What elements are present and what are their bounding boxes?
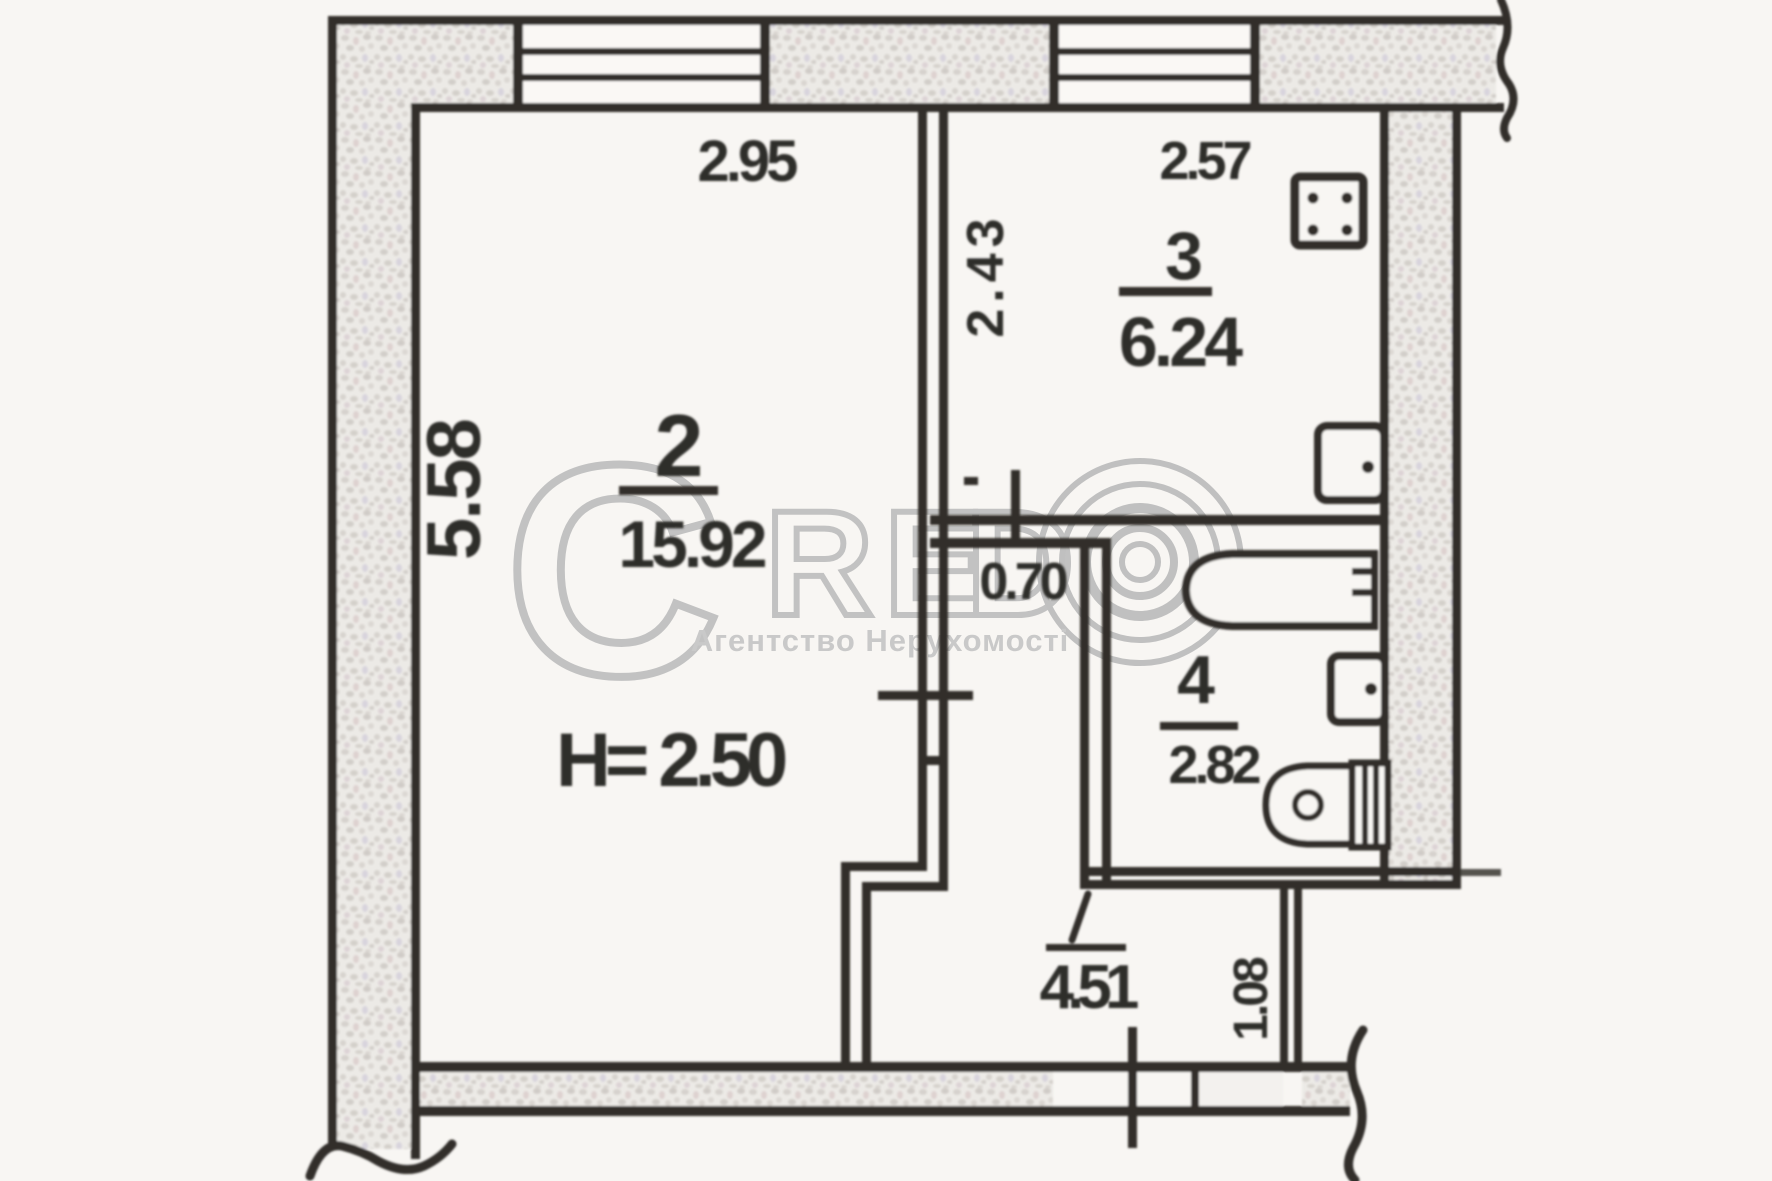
svg-text:Агентство Нерухомості: Агентство Нерухомості [691,623,1070,658]
svg-text:2.82: 2.82 [1168,735,1259,795]
svg-text:6.24: 6.24 [1119,303,1243,381]
svg-text:3: 3 [1165,218,1203,294]
svg-text:H= 2.50: H= 2.50 [556,718,786,803]
svg-text:2.57: 2.57 [1159,131,1250,191]
svg-text:4.51: 4.51 [1040,953,1138,1022]
svg-text:2: 2 [655,396,704,495]
svg-text:5.58: 5.58 [412,420,497,560]
svg-text:4: 4 [1177,642,1215,718]
svg-text:2.95: 2.95 [698,129,798,194]
svg-text:R: R [765,479,873,647]
svg-text:2.43: 2.43 [957,212,1015,337]
svg-text:1.08: 1.08 [1225,957,1278,1041]
svg-text:15.92: 15.92 [618,507,765,581]
svg-text:0.70: 0.70 [979,553,1066,611]
